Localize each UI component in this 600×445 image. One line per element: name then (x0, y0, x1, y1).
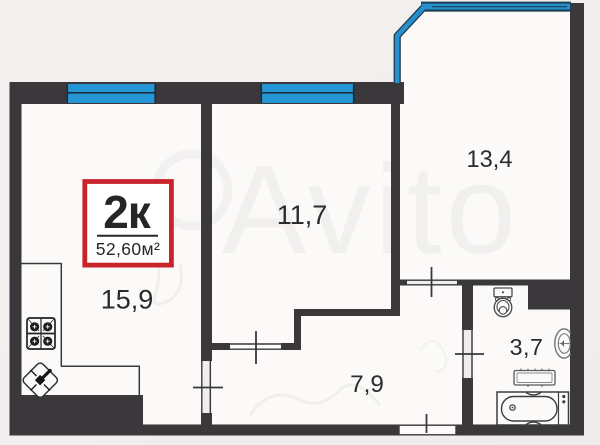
svg-text:3,7: 3,7 (510, 334, 544, 360)
svg-text:52,60м²: 52,60м² (96, 239, 160, 259)
svg-text:15,9: 15,9 (101, 285, 154, 315)
svg-text:11,7: 11,7 (277, 200, 328, 230)
svg-text:7,9: 7,9 (350, 371, 384, 398)
svg-text:2к: 2к (103, 186, 152, 238)
svg-text:13,4: 13,4 (467, 147, 513, 173)
